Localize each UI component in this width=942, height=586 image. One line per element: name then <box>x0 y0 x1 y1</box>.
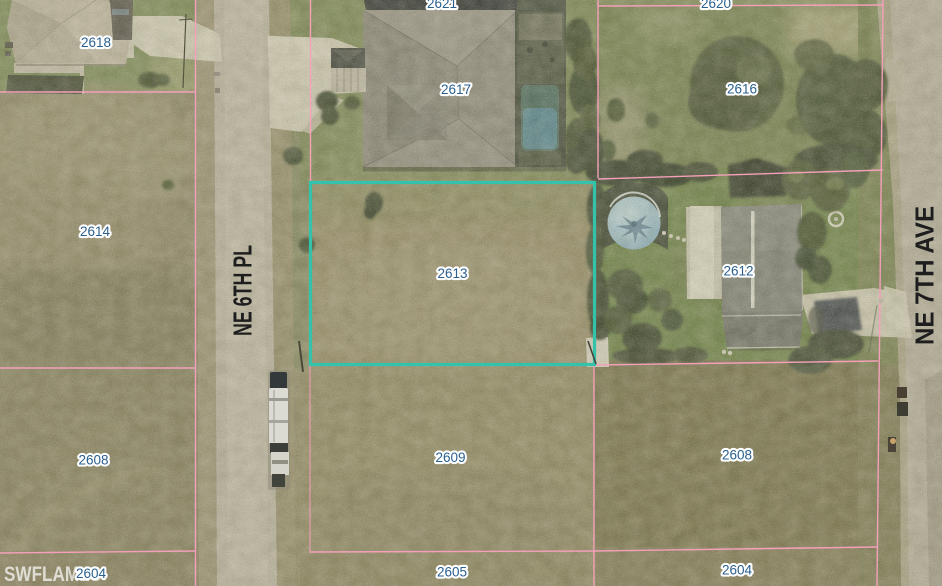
svg-text:2609: 2609 <box>435 450 465 465</box>
svg-text:2608: 2608 <box>722 448 752 463</box>
svg-text:NE 7TH AVE: NE 7TH AVE <box>910 206 940 345</box>
svg-text:2620: 2620 <box>701 0 731 11</box>
svg-text:2608: 2608 <box>78 453 108 468</box>
svg-text:2618: 2618 <box>81 35 111 50</box>
svg-text:2605: 2605 <box>437 565 467 580</box>
svg-text:2604: 2604 <box>76 566 107 581</box>
svg-text:2614: 2614 <box>80 224 111 239</box>
svg-text:2604: 2604 <box>722 563 753 578</box>
svg-text:2612: 2612 <box>723 264 753 279</box>
svg-text:2621: 2621 <box>427 0 457 11</box>
svg-text:2617: 2617 <box>441 82 471 97</box>
svg-text:NE 6TH PL: NE 6TH PL <box>228 245 258 336</box>
svg-text:2613: 2613 <box>437 266 467 281</box>
svg-text:2616: 2616 <box>727 82 757 97</box>
